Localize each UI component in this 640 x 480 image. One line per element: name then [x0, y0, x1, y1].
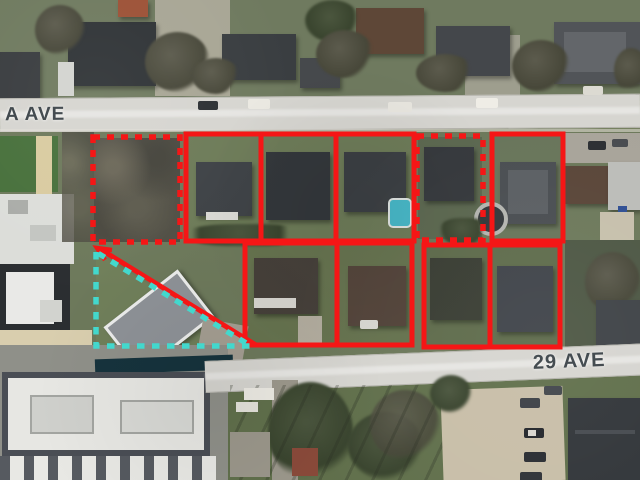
bottom-lot-block-west — [245, 243, 412, 345]
lot-annotations-overlay — [0, 0, 640, 480]
cyan-dashed-parcel — [96, 252, 251, 346]
dotted-lot-top — [417, 136, 483, 240]
top-lot-block — [186, 134, 414, 241]
satellite-map-image: A AVE — [0, 0, 640, 480]
red-arrow-shaft — [100, 249, 256, 345]
dotted-lot-northwest — [93, 137, 180, 242]
top-lot-east — [492, 134, 563, 241]
